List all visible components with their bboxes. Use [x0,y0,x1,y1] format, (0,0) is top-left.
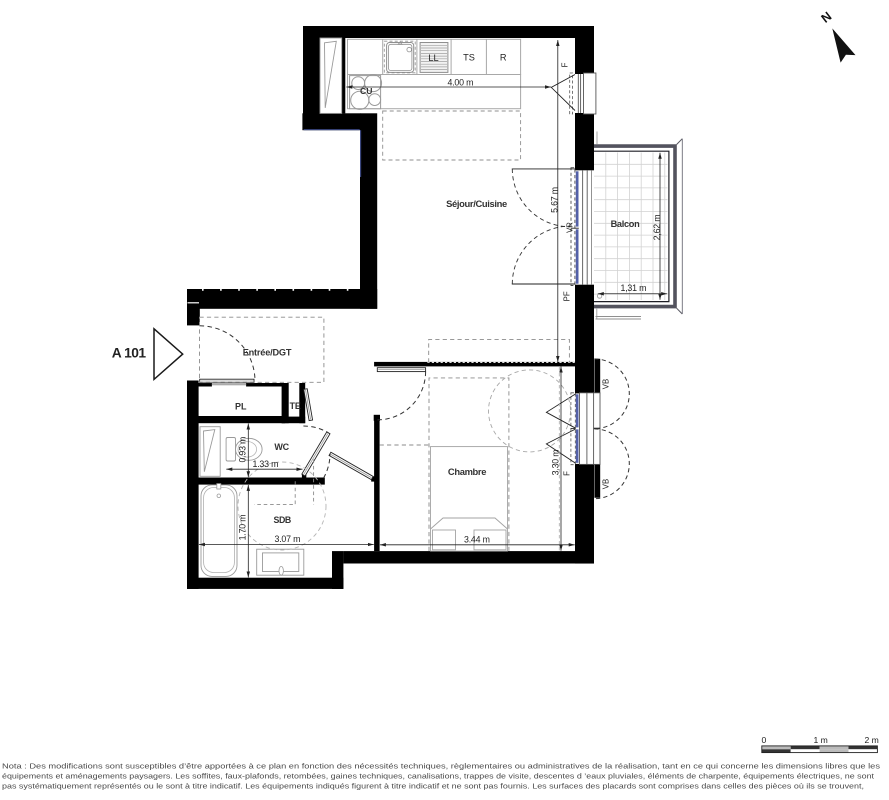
svg-text:PL: PL [235,401,247,411]
svg-text:TE: TE [290,401,301,411]
svg-text:SDB: SDB [274,515,291,525]
svg-text:VB: VB [601,379,610,389]
svg-text:Balcon: Balcon [611,219,641,229]
svg-text:3.07 m: 3.07 m [275,534,301,544]
svg-text:1 m: 1 m [814,735,828,745]
svg-text:VR: VR [566,222,575,233]
svg-text:Chambre: Chambre [448,466,486,477]
svg-text:2,62 m: 2,62 m [652,215,662,241]
svg-text:pas systématiquement représent: pas systématiquement représentés ou le s… [2,782,864,791]
svg-text:Nota : Des modifications sont: Nota : Des modifications sont susceptibl… [2,762,880,771]
svg-text:F: F [562,471,571,476]
svg-text:F: F [560,62,569,67]
svg-text:équipements et aménagements pa: équipements et aménagements paysagers. L… [2,772,875,781]
svg-text:WC: WC [274,442,289,452]
svg-text:PF: PF [563,291,572,301]
svg-text:Entrée/DGT: Entrée/DGT [243,348,292,358]
svg-text:VB: VB [601,479,610,489]
svg-text:A 101: A 101 [112,346,147,361]
svg-text:0.93 m: 0.93 m [238,437,248,463]
svg-text:1.33 m: 1.33 m [253,459,279,469]
svg-text:LL: LL [428,53,438,63]
svg-text:3.30 m: 3.30 m [551,450,561,476]
svg-text:0: 0 [762,735,767,745]
svg-text:4.00 m: 4.00 m [448,77,474,87]
svg-text:1,31 m: 1,31 m [621,283,647,293]
svg-text:R: R [500,52,507,62]
svg-text:TS: TS [463,52,475,62]
svg-text:2 m: 2 m [865,735,879,745]
svg-text:5.67 m: 5.67 m [550,187,560,213]
svg-text:CU: CU [360,86,372,96]
svg-text:1.70 m: 1.70 m [238,515,248,541]
svg-text:3.44 m: 3.44 m [464,534,490,544]
svg-text:Séjour/Cuisine: Séjour/Cuisine [446,198,507,209]
